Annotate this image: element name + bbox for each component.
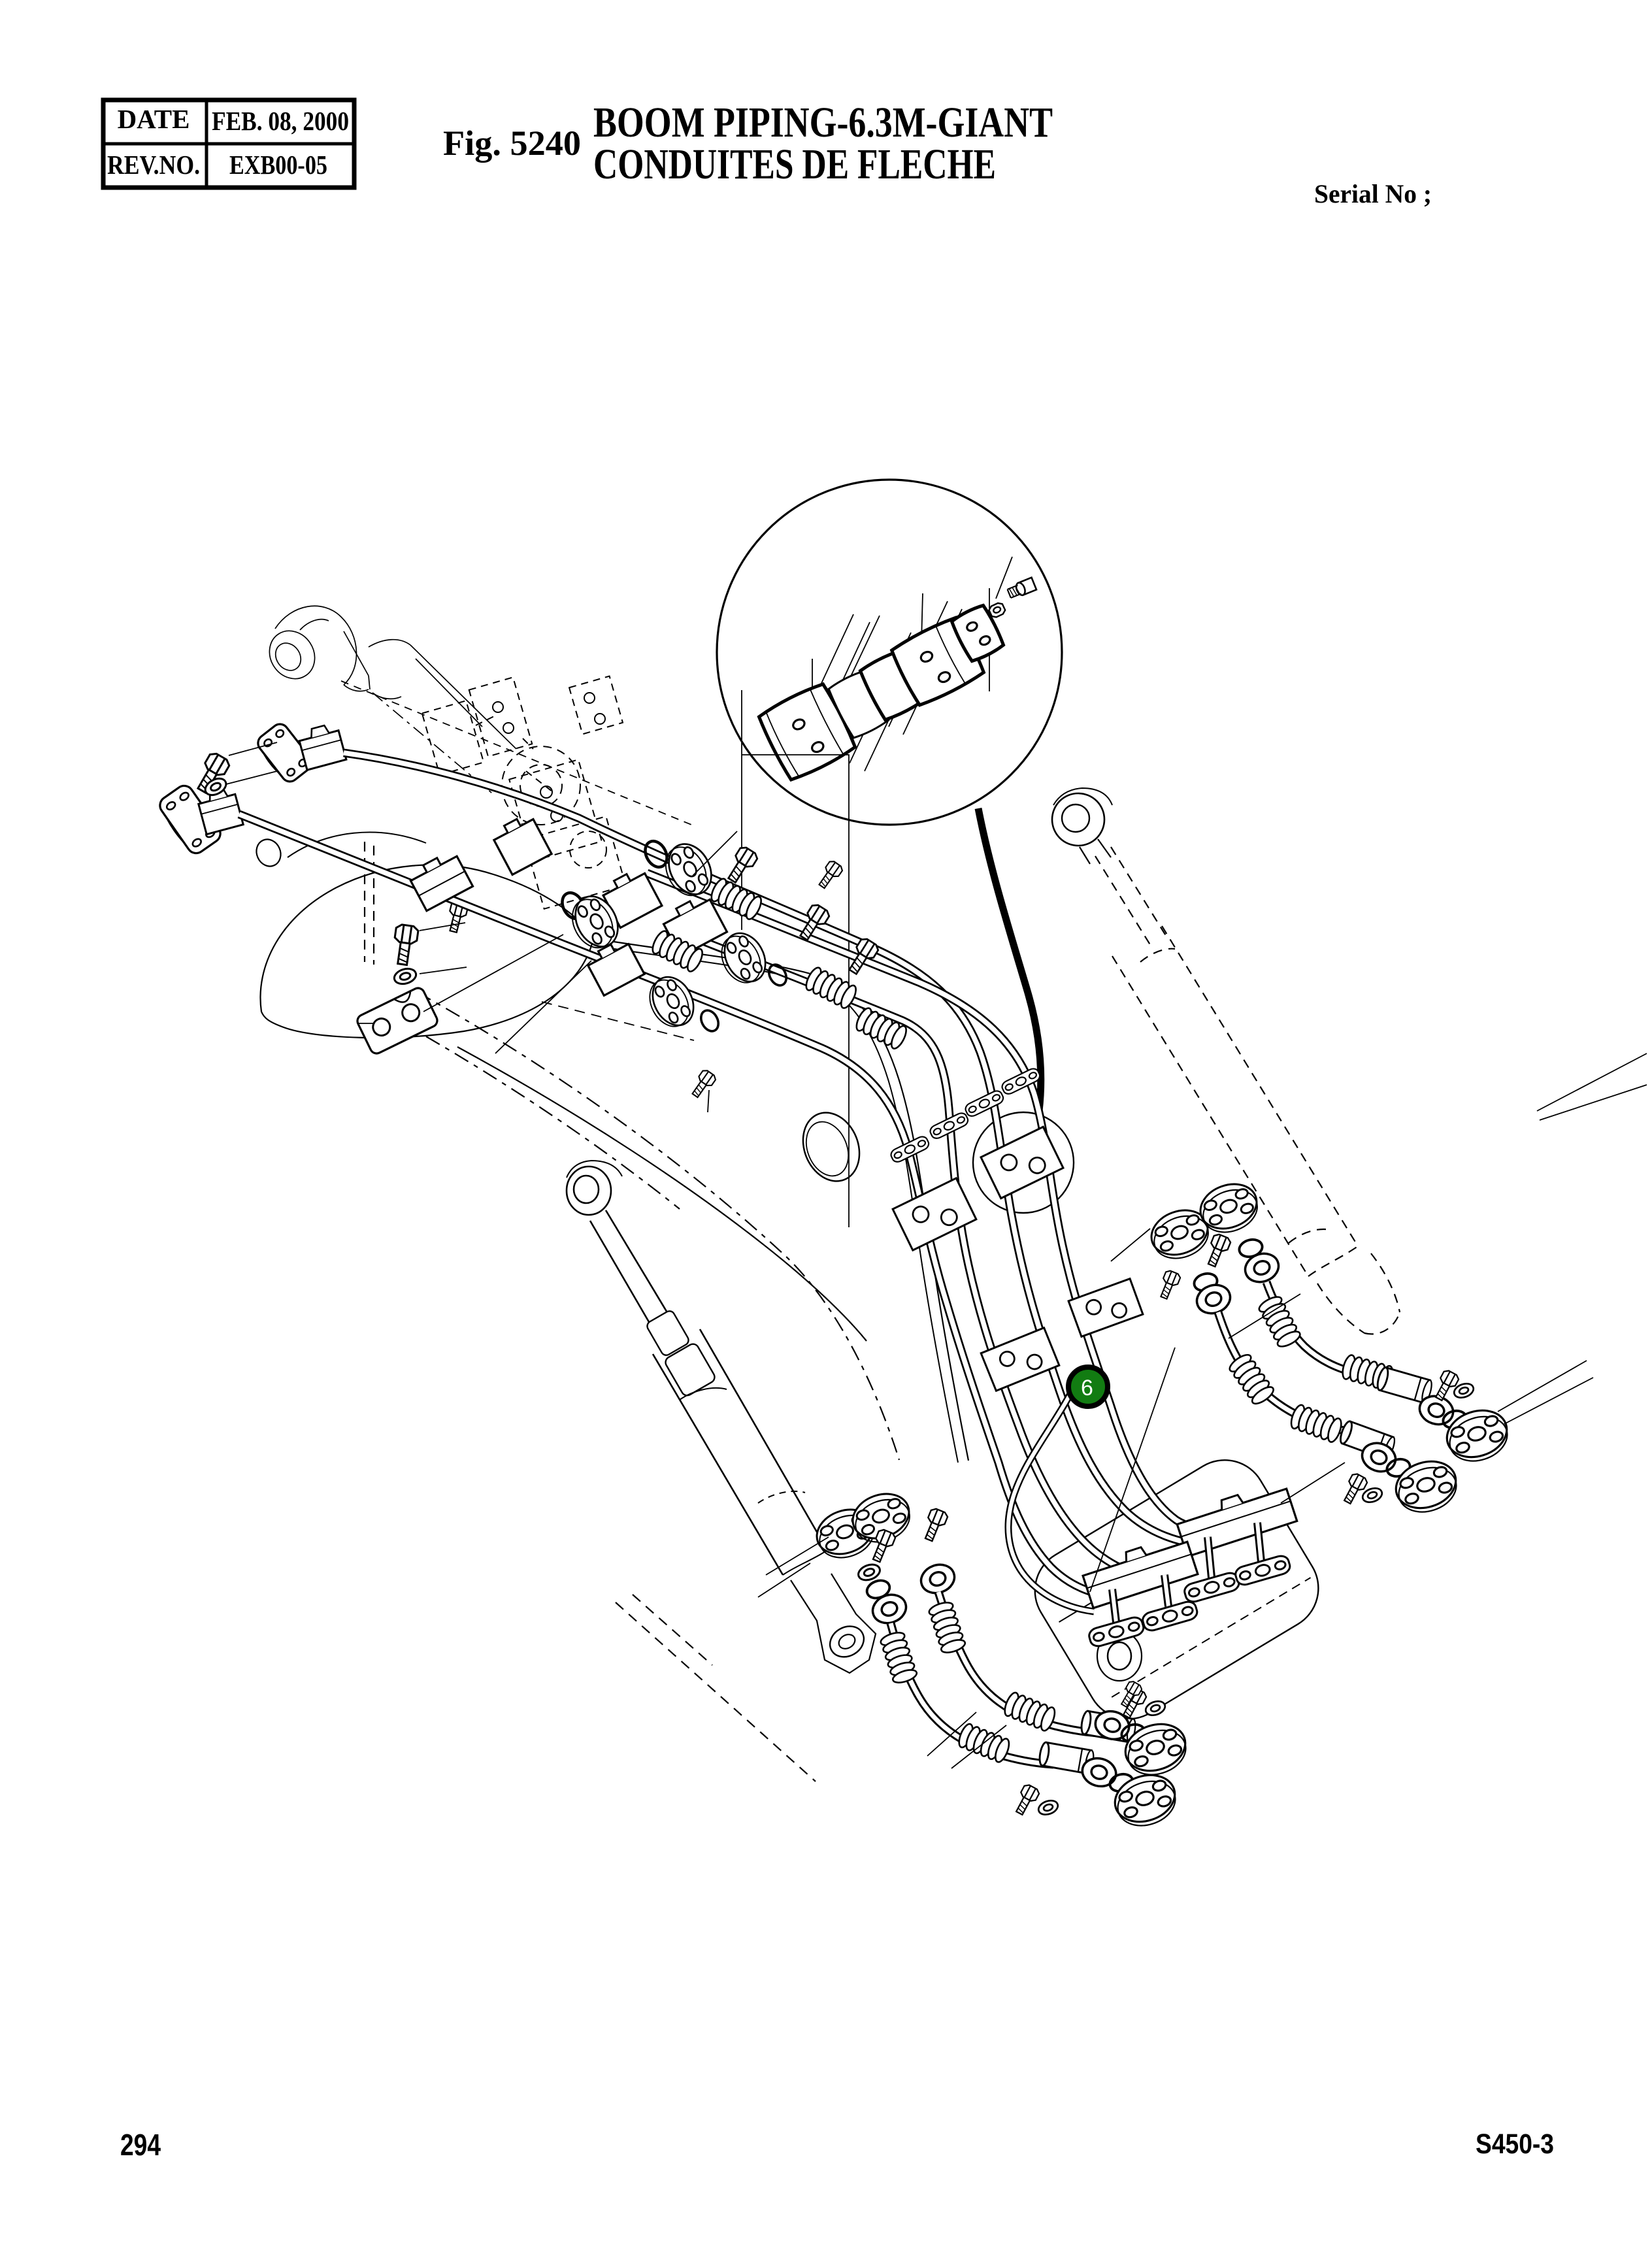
- svg-text:DATE: DATE: [118, 104, 190, 134]
- svg-text:S450-3: S450-3: [1476, 2128, 1554, 2160]
- svg-text:Fig. 5240: Fig. 5240: [443, 124, 581, 163]
- svg-text:EXB00-05: EXB00-05: [229, 150, 327, 180]
- svg-text:FEB. 08, 2000: FEB. 08, 2000: [212, 106, 349, 136]
- svg-text:Serial No ;: Serial No ;: [1314, 179, 1432, 208]
- svg-text:REV.NO.: REV.NO.: [107, 150, 200, 180]
- svg-text:BOOM PIPING-6.3M-GIANT: BOOM PIPING-6.3M-GIANT: [593, 99, 1053, 146]
- svg-text:6: 6: [1081, 1376, 1093, 1400]
- svg-text:294: 294: [120, 2128, 161, 2162]
- svg-text:CONDUITES DE FLECHE: CONDUITES DE FLECHE: [593, 141, 996, 188]
